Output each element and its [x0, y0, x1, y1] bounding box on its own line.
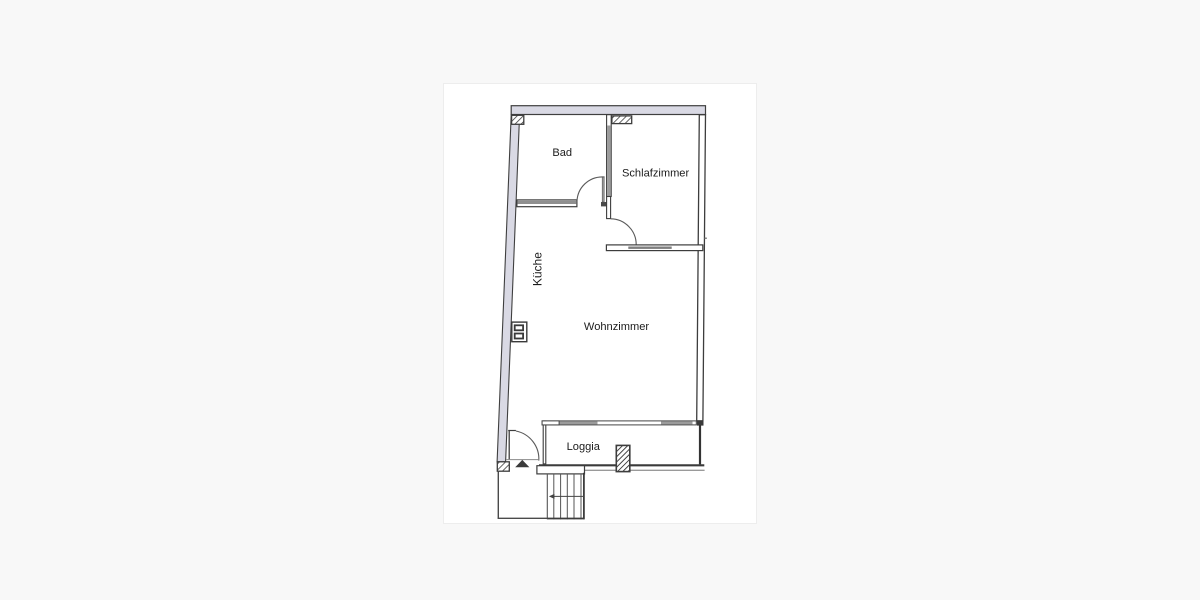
svg-text:Loggia: Loggia: [567, 441, 601, 453]
svg-text:Schlafzimmer: Schlafzimmer: [622, 168, 689, 180]
svg-text:Küche: Küche: [531, 252, 545, 286]
svg-text:Bad: Bad: [552, 147, 572, 159]
svg-text:Wohnzimmer: Wohnzimmer: [584, 321, 649, 333]
